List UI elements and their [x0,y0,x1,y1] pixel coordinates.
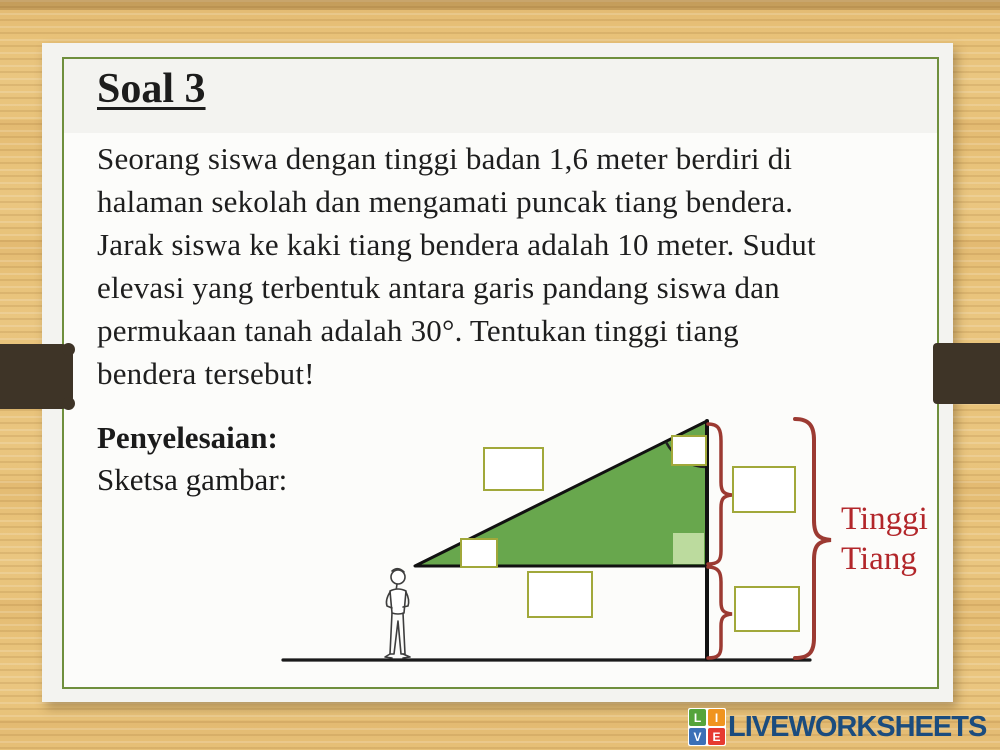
answer-box-distance-label[interactable] [527,571,593,618]
wood-top-shade [0,0,1000,10]
total-height-brace [795,419,831,658]
answer-box-apex-angle[interactable] [671,435,707,466]
problem-line: Seorang siswa dengan tinggi badan 1,6 me… [97,137,816,180]
liveworksheets-footer[interactable]: L I V E LIVEWORKSHEETS [688,708,986,746]
upper-height-brace [708,424,732,564]
problem-line: Jarak siswa ke kaki tiang bendera adalah… [97,223,816,266]
logo-letter-i: I [708,709,725,726]
right-angle-marker [673,533,704,564]
sketch-label: Sketsa gambar: [97,462,287,498]
person-figure [385,569,410,658]
observer-height-brace [708,567,732,658]
logo-letter-v: V [689,728,706,745]
solution-label: Penyelesaian: [97,420,278,456]
left-ribbon [0,344,73,409]
pole-height-label-line1: Tinggi [841,499,928,539]
problem-title: Soal 3 [97,65,206,113]
problem-line: permukaan tanah adalah 30°. Tentukan tin… [97,309,816,352]
answer-box-upper-height[interactable] [732,466,796,513]
logo-letter-l: L [689,709,706,726]
liveworksheets-wordmark: LIVEWORKSHEETS [728,711,986,744]
sight-triangle [415,421,707,566]
wood-background: Soal 3 Seorang siswa dengan tinggi badan… [0,0,1000,750]
liveworksheets-logo-icon: L I V E [688,708,726,746]
right-ribbon [933,343,1000,404]
answer-box-elevation-angle[interactable] [460,538,498,568]
problem-line: elevasi yang terbentuk antara garis pand… [97,266,816,309]
problem-line: bendera tersebut! [97,352,816,395]
answer-box-hypotenuse-label[interactable] [483,447,544,491]
pole-height-label-line2: Tiang [841,539,928,579]
answer-box-observer-height[interactable] [734,586,800,632]
pole-height-label: Tinggi Tiang [841,499,928,579]
problem-line: halaman sekolah dan mengamati puncak tia… [97,180,816,223]
problem-text: Seorang siswa dengan tinggi badan 1,6 me… [97,137,816,395]
logo-letter-e: E [708,728,725,745]
